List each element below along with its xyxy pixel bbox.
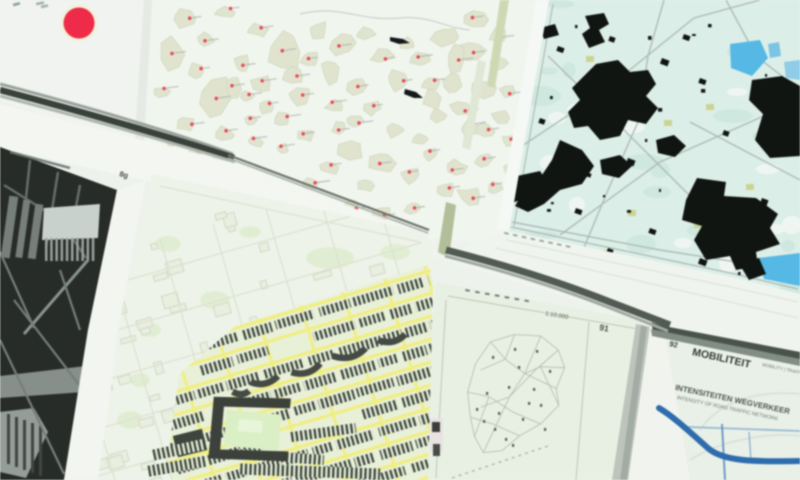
svg-text:91: 91 [599,322,610,334]
